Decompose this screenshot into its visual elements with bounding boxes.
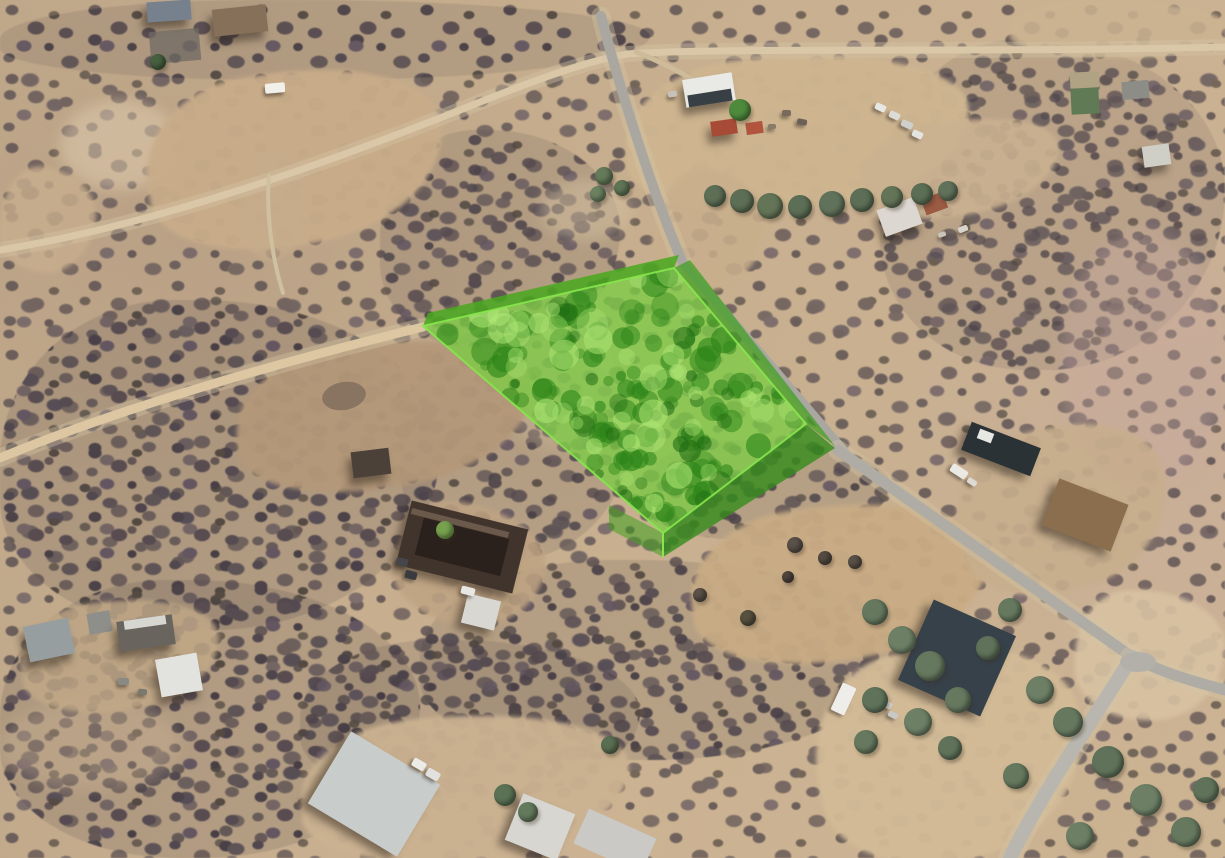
aerial-satellite-view[interactable]: Oblique aerial satellite view of desert … — [0, 0, 1225, 858]
parcel-highlight-overlay[interactable] — [0, 0, 1225, 858]
